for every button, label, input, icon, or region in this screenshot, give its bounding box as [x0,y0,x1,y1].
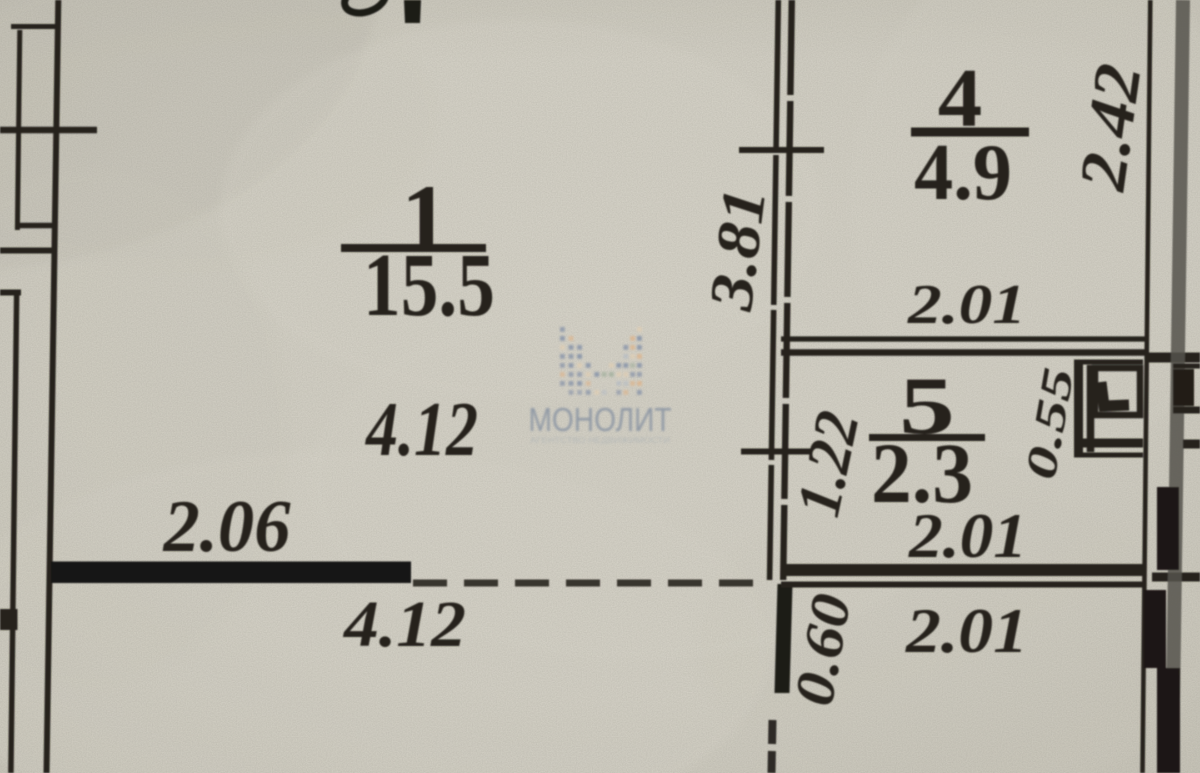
svg-text:4.9: 4.9 [914,129,1012,217]
svg-text:2.06: 2.06 [163,486,291,568]
svg-text:2.01: 2.01 [907,274,1026,336]
svg-text:АГЕНТСТВО НЕДВИЖИМОСТИ: АГЕНТСТВО НЕДВИЖИМОСТИ [530,435,670,445]
svg-text:МОНОЛИТ: МОНОЛИТ [529,401,672,438]
svg-text:2.01: 2.01 [908,500,1027,571]
svg-text:15.5: 15.5 [363,236,495,335]
svg-text:2.01: 2.01 [905,595,1028,666]
svg-text:4.12: 4.12 [342,588,466,661]
svg-text:4.12: 4.12 [364,386,478,472]
